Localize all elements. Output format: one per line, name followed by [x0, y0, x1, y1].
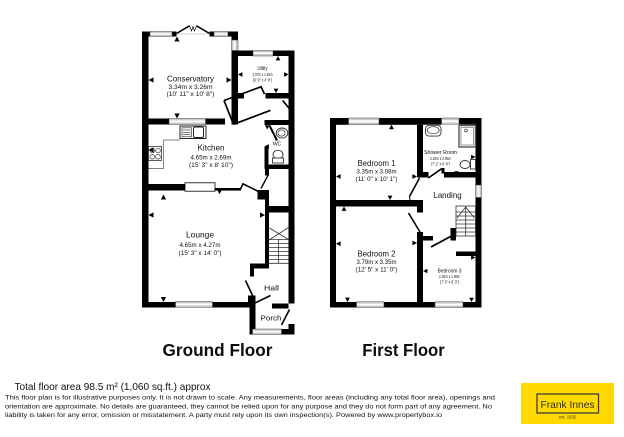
svg-text:First Floor: First Floor [362, 340, 445, 360]
svg-text:(12' 5" x 11' 0"): (12' 5" x 11' 0") [356, 267, 398, 274]
svg-text:2.19m x 2.05m: 2.19m x 2.05m [430, 156, 451, 161]
svg-text:Ground Floor: Ground Floor [163, 340, 273, 360]
svg-text:WC: WC [273, 142, 282, 148]
svg-text:Frank Innes: Frank Innes [541, 399, 595, 411]
svg-text:This floor plan is for illustr: This floor plan is for illustrative purp… [5, 395, 495, 402]
svg-text:2.07m x 1.46m: 2.07m x 1.46m [253, 72, 273, 77]
svg-text:2.20m x 1.90m: 2.20m x 1.90m [439, 274, 460, 279]
svg-text:3.79m x 3.35m: 3.79m x 3.35m [357, 259, 397, 266]
svg-text:3.35m x 3.08m: 3.35m x 3.08m [357, 169, 397, 176]
svg-text:Bedroom 1: Bedroom 1 [358, 158, 396, 168]
svg-text:Bedroom 2: Bedroom 2 [358, 249, 396, 259]
svg-text:(15' 3" x 14' 0"): (15' 3" x 14' 0") [179, 250, 222, 257]
svg-text:Porch: Porch [261, 316, 282, 323]
svg-text:3.34m x 3.26m: 3.34m x 3.26m [169, 84, 213, 91]
svg-text:Hall: Hall [264, 286, 280, 293]
svg-text:(10' 11" x 10' 8"): (10' 11" x 10' 8") [167, 91, 215, 98]
svg-text:Lounge: Lounge [186, 230, 214, 240]
svg-text:Landing: Landing [433, 190, 462, 200]
svg-text:liability is taken for any err: liability is taken for any error, omissi… [5, 412, 442, 419]
svg-text:(7' 3" x 6' 3"): (7' 3" x 6' 3") [440, 280, 459, 285]
svg-text:(6' 9" x 4' 9"): (6' 9" x 4' 9") [253, 78, 272, 83]
svg-text:Kitchen: Kitchen [198, 143, 225, 153]
svg-text:Conservatory: Conservatory [167, 74, 215, 84]
svg-text:(15' 3" x 8' 10"): (15' 3" x 8' 10") [189, 162, 233, 169]
svg-text:est. 1932: est. 1932 [559, 415, 577, 420]
svg-text:Total floor area 98.5 m² (1,06: Total floor area 98.5 m² (1,060 sq.ft.) … [15, 381, 212, 393]
svg-text:(11' 0" x 10' 1"): (11' 0" x 10' 1") [356, 176, 398, 183]
svg-text:4.65m x 2.69m: 4.65m x 2.69m [191, 155, 232, 162]
svg-text:orientation are approximate. N: orientation are approximate. No details … [5, 403, 492, 410]
svg-text:(7' 2" x 6' 9"): (7' 2" x 6' 9") [431, 162, 450, 167]
svg-text:4.65m x 4.27m: 4.65m x 4.27m [180, 242, 221, 249]
